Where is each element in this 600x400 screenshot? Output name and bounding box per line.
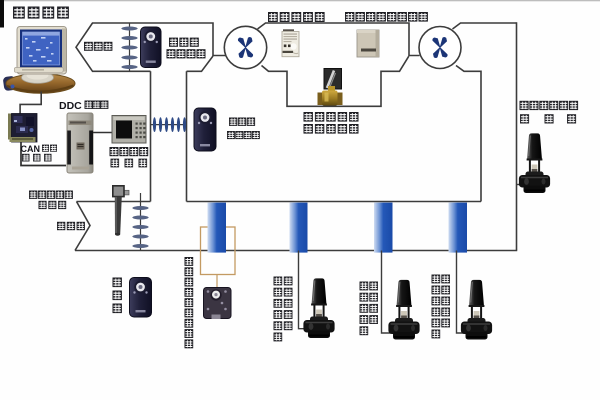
svg-text:DDC: DDC xyxy=(59,100,82,112)
svg-text:CAN: CAN xyxy=(21,144,41,154)
